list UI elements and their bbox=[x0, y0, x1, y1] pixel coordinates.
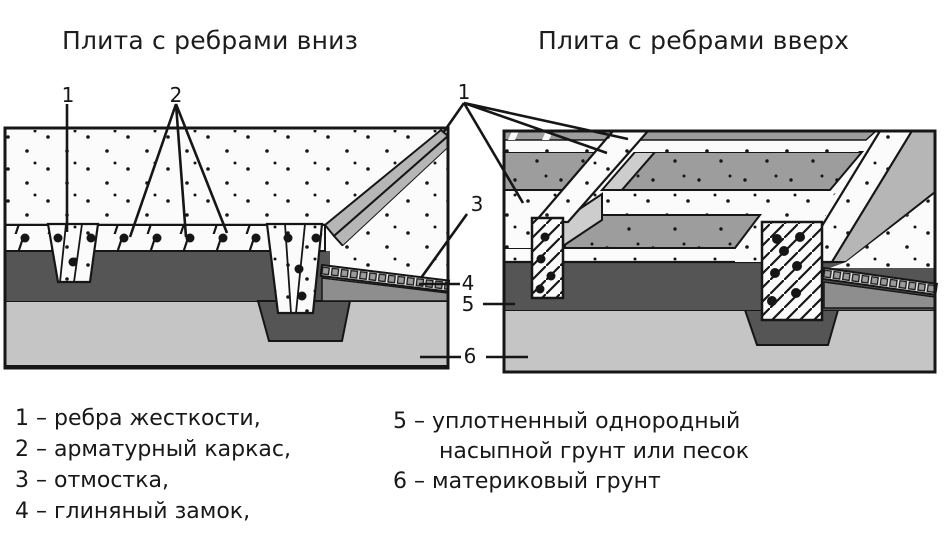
callout-blind-area-3: 3 bbox=[471, 192, 484, 216]
native-soil-layer bbox=[5, 301, 448, 366]
rebar-cage-right bbox=[762, 222, 822, 320]
panel-row2-right bbox=[622, 152, 862, 190]
callout-ribs-down-1: 1 bbox=[62, 83, 75, 107]
rib-top-band-a bbox=[504, 140, 872, 152]
legend-item-1: 1 – ребра жесткости, bbox=[15, 403, 291, 434]
callout-native-soil-6: 6 bbox=[464, 344, 477, 368]
legend-item-3: 3 – отмостка, bbox=[15, 465, 291, 496]
callout-fill-soil-5: 5 bbox=[462, 292, 475, 316]
legend-item-5: 5 – уплотненный однородный bbox=[393, 407, 749, 437]
section-ribs-down bbox=[5, 128, 449, 368]
legend-item-2: 2 – арматурный каркас, bbox=[15, 434, 291, 465]
legend-item-5-line2: насыпной грунт или песок bbox=[393, 437, 749, 467]
rebar-cage-left bbox=[532, 218, 563, 298]
legend-item-4: 4 – глиняный замок, bbox=[15, 496, 291, 527]
legend-left: 1 – ребра жесткости, 2 – арматурный карк… bbox=[15, 403, 291, 527]
callout-ribs-down-2: 2 bbox=[170, 83, 183, 107]
callout-ribs-up-1: 1 bbox=[458, 80, 471, 104]
legend-item-6: 6 – материковый грунт bbox=[393, 467, 749, 497]
native-soil-layer bbox=[504, 310, 935, 372]
section-ribs-up bbox=[504, 131, 937, 372]
figure-canvas: Плита с ребрами вниз Плита с ребрами вве… bbox=[0, 0, 945, 534]
rib-down-left bbox=[48, 224, 98, 282]
legend-right: 5 – уплотненный однородный насыпной грун… bbox=[393, 407, 749, 497]
